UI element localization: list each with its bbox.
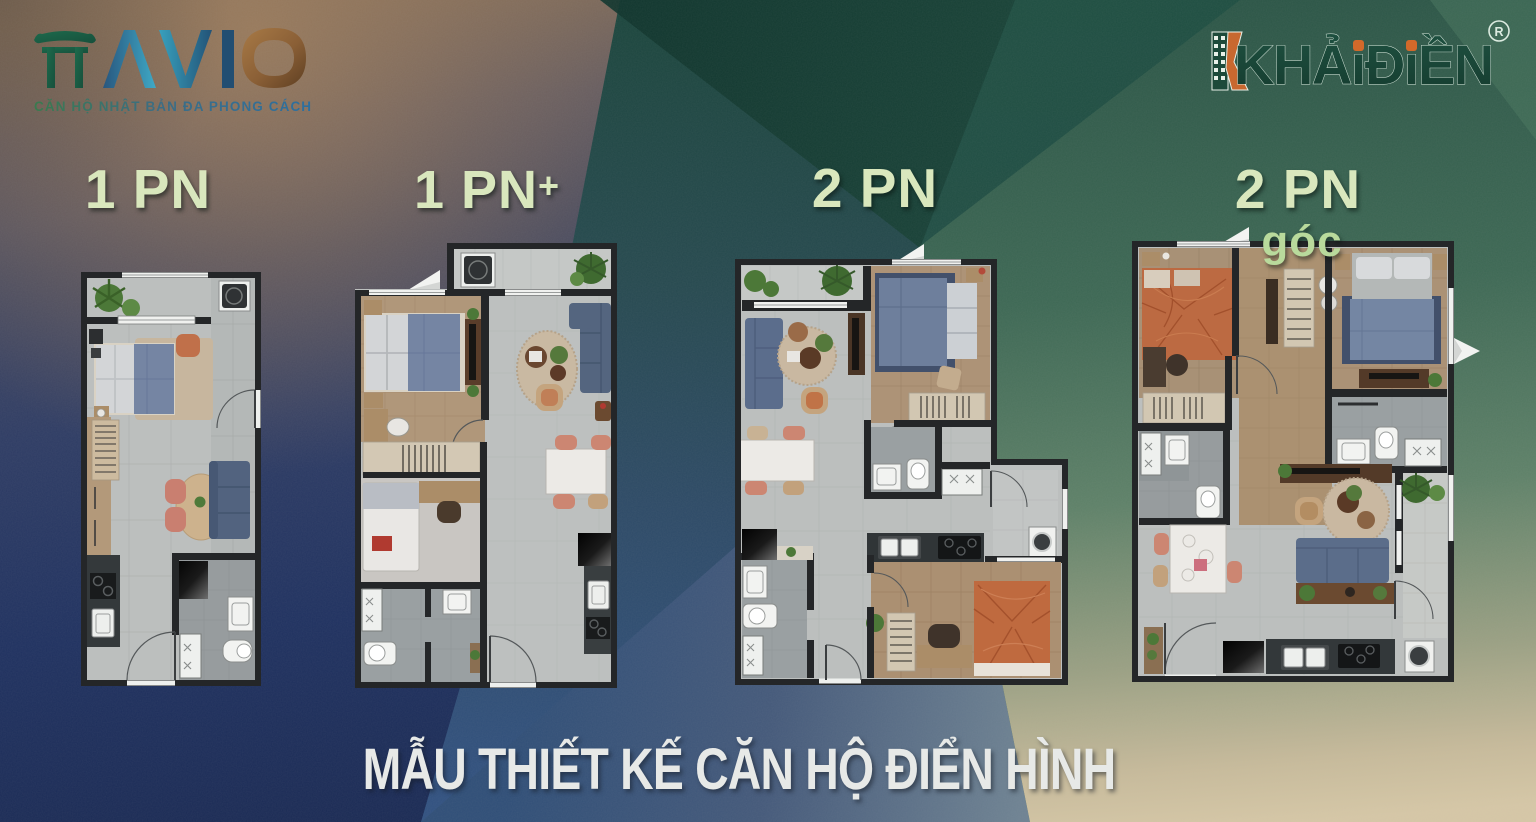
svg-text:R: R (1495, 25, 1504, 39)
svg-text:CĂN HỘ NHẬT BẢN ĐA PHONG CÁCH: CĂN HỘ NHẬT BẢN ĐA PHONG CÁCH (34, 99, 312, 114)
